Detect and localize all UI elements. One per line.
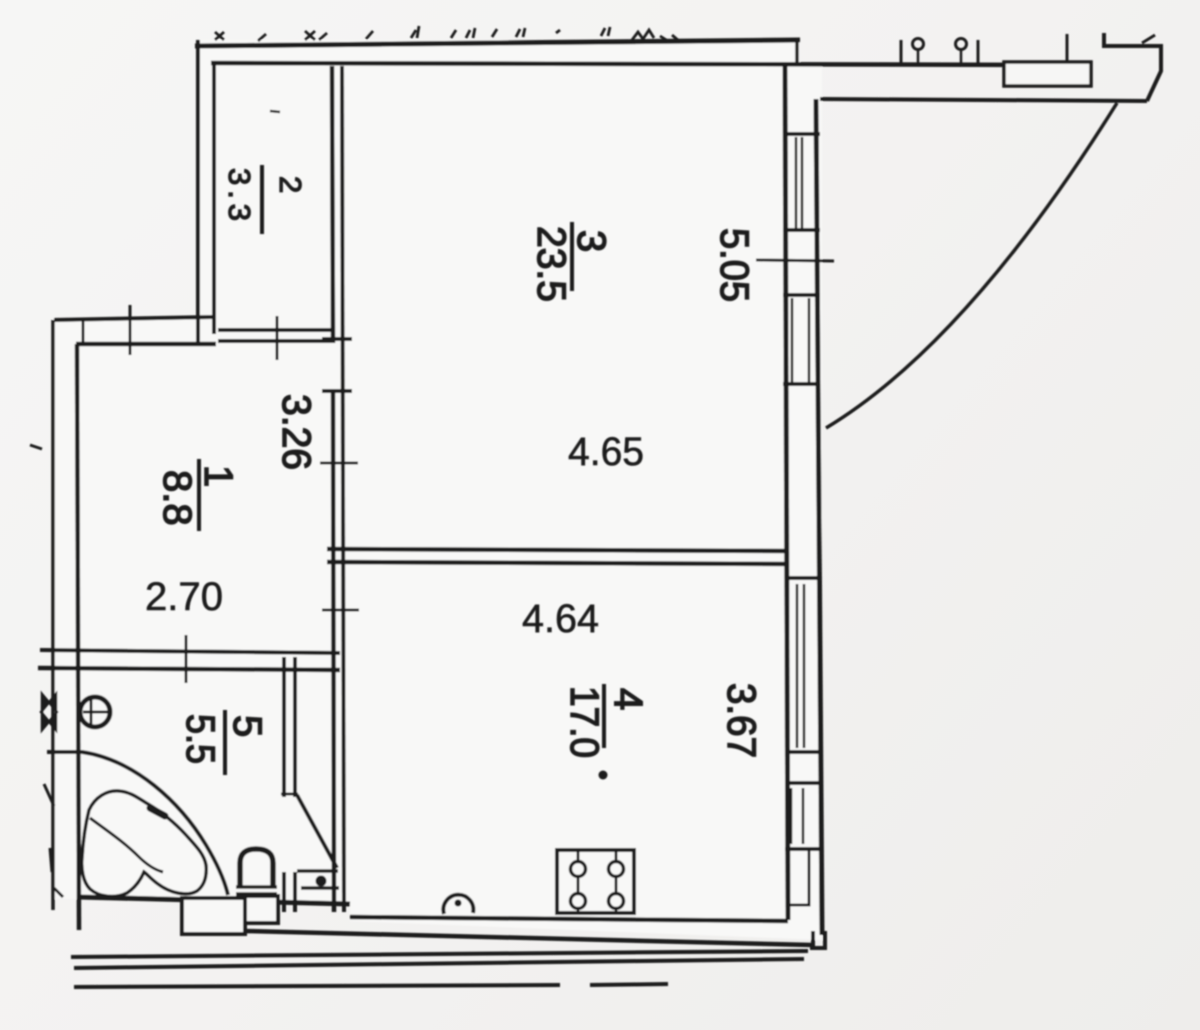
svg-text:2: 2 xyxy=(273,176,308,193)
svg-text:2.70: 2.70 xyxy=(145,575,223,619)
svg-text:4.65: 4.65 xyxy=(568,430,644,474)
svg-text:23.5: 23.5 xyxy=(529,226,573,302)
svg-text:5.5: 5.5 xyxy=(178,714,222,764)
svg-text:17.0: 17.0 xyxy=(562,686,606,758)
svg-text:3.67: 3.67 xyxy=(719,683,763,758)
svg-text:3.26: 3.26 xyxy=(274,394,318,470)
svg-text:3.3: 3.3 xyxy=(222,168,257,221)
svg-text:4.64: 4.64 xyxy=(522,597,599,641)
svg-text:8.8: 8.8 xyxy=(155,470,199,526)
svg-text:3: 3 xyxy=(569,230,613,252)
svg-text:4: 4 xyxy=(606,688,650,710)
svg-text:5.05: 5.05 xyxy=(712,228,756,302)
svg-text:1: 1 xyxy=(196,465,240,487)
svg-text:5: 5 xyxy=(225,715,269,737)
